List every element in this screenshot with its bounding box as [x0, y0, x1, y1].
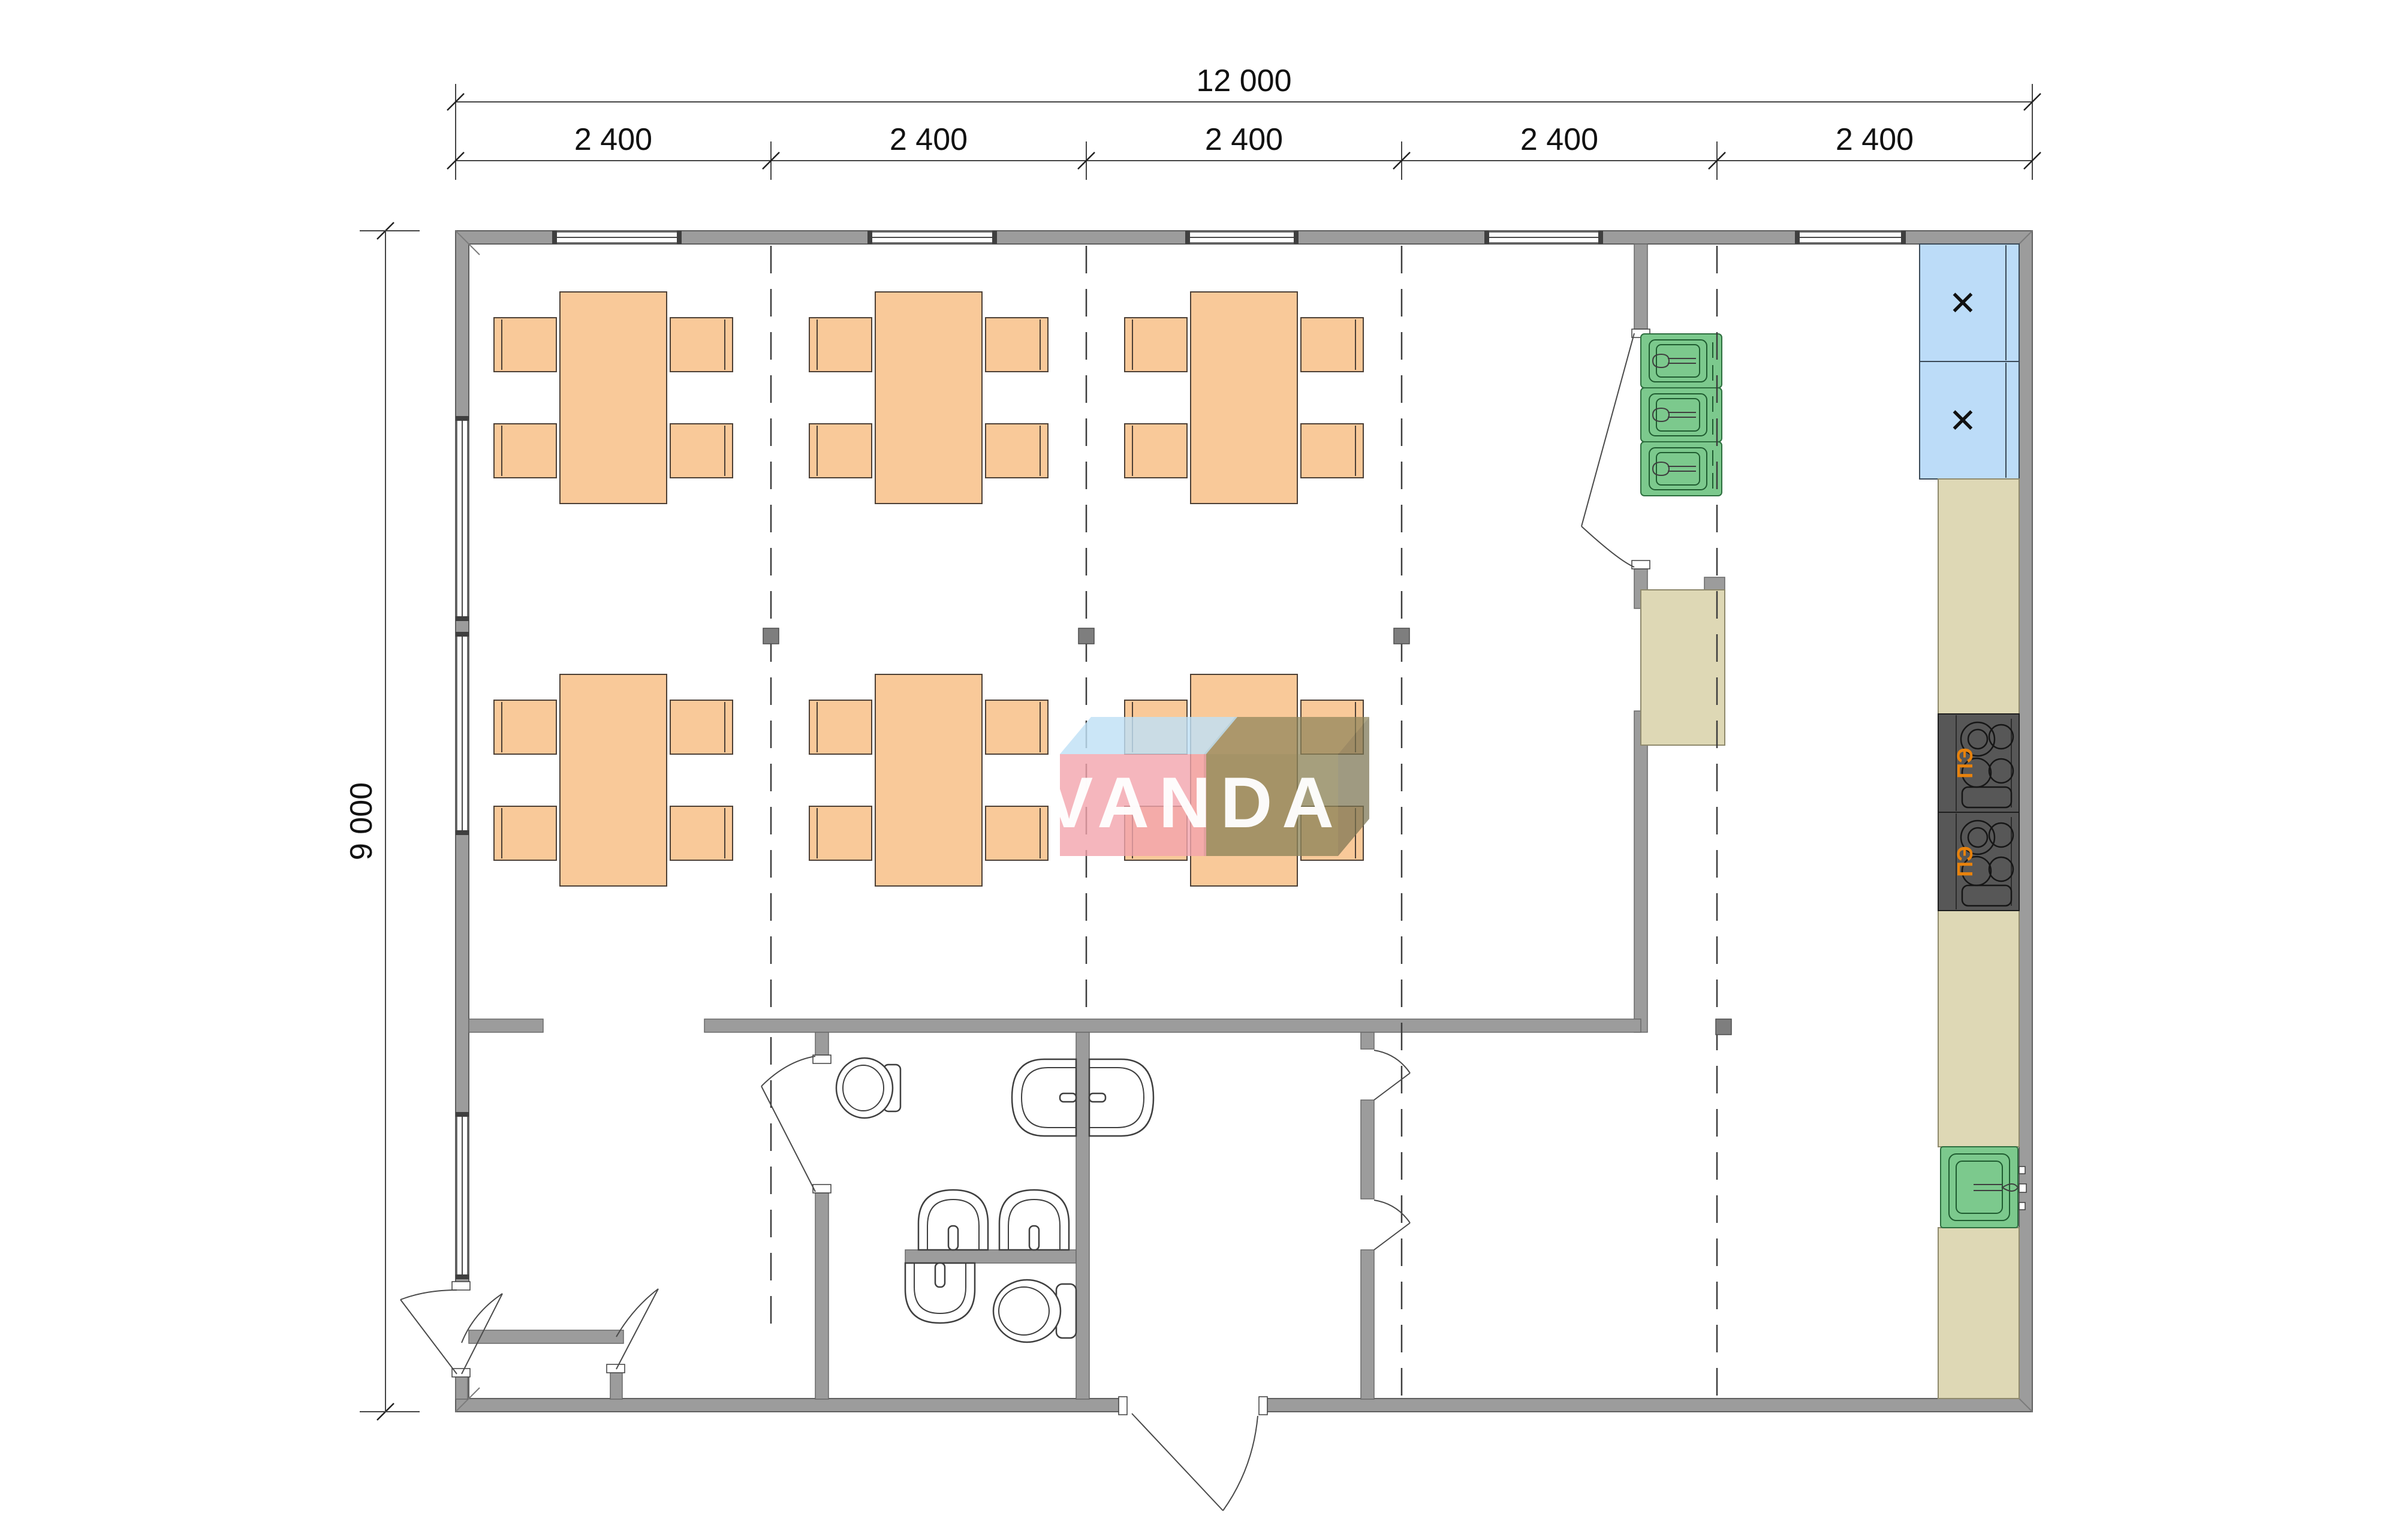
- wall: [1361, 1250, 1374, 1399]
- sanitary-block: [836, 1058, 1153, 1342]
- toilet: [836, 1058, 900, 1118]
- wall: [1361, 1100, 1374, 1199]
- electric-stove: ПЭ: [1938, 812, 2019, 911]
- wash-basin: [1089, 1059, 1153, 1136]
- single-sink: [1941, 1147, 2026, 1228]
- wash-basin: [1012, 1059, 1076, 1136]
- wash-basin: [918, 1190, 988, 1250]
- toilet: [993, 1280, 1076, 1342]
- wash-basin: [905, 1263, 975, 1323]
- dimension-label-total-width: 12 000: [1196, 64, 1291, 98]
- floor-plan-canvas: 12 000 2 400 2 400 2 400 2 400 2 400 9 0: [0, 0, 2398, 1540]
- dimension-label-height: 9 000: [344, 782, 379, 860]
- wall: [1634, 244, 1647, 329]
- dining-table-group: [809, 674, 1048, 886]
- kitchen: ✕ ✕ ПЭ ПЭ: [1641, 244, 2026, 1399]
- window: [456, 632, 469, 835]
- wall: [1076, 1032, 1089, 1399]
- counter: [1938, 1228, 2019, 1399]
- wall: [469, 1330, 623, 1343]
- counter: [1938, 479, 2019, 714]
- door-swing: [1374, 1050, 1410, 1100]
- wall: [704, 1019, 1641, 1032]
- sink-basin: [1641, 442, 1722, 496]
- watermark-text: VANDA: [1045, 763, 1343, 843]
- window: [456, 416, 469, 621]
- cabinet-x-mark: ✕: [1949, 402, 1977, 441]
- dimension-label-segment: 2 400: [574, 122, 652, 157]
- stove-label: ПЭ: [1953, 748, 1977, 779]
- door-swing: [400, 1290, 457, 1374]
- dining-table-group: [809, 292, 1048, 504]
- watermark: VANDA: [1045, 717, 1369, 856]
- door-swing: [1374, 1200, 1410, 1250]
- wall: [815, 1032, 829, 1055]
- window: [1185, 231, 1299, 244]
- column-marker: [1394, 628, 1409, 644]
- wall: [456, 1376, 468, 1399]
- column-marker: [763, 628, 779, 644]
- stove-label: ПЭ: [1953, 846, 1977, 877]
- column-marker: [1716, 1019, 1731, 1035]
- wall: [610, 1372, 622, 1399]
- window: [552, 231, 682, 244]
- window: [867, 231, 997, 244]
- electric-stove: ПЭ: [1938, 714, 2019, 812]
- dimension-label-segment: 2 400: [890, 122, 968, 157]
- exterior-door-openings: [452, 1282, 1267, 1415]
- dining-table-group: [494, 292, 733, 504]
- counter: [1938, 910, 2019, 1147]
- wall: [905, 1250, 1076, 1263]
- counter: [1641, 590, 1725, 745]
- sink-basin: [1641, 334, 1722, 388]
- sink-basin: [1641, 388, 1722, 442]
- door-swing: [1581, 333, 1634, 567]
- window: [1484, 231, 1603, 244]
- cabinet-x-mark: ✕: [1949, 284, 1977, 323]
- floor-plan: 12 000 2 400 2 400 2 400 2 400 2 400 9 0: [0, 0, 2398, 1540]
- door-swing: [761, 1056, 815, 1192]
- dimension-label-segment: 2 400: [1836, 122, 1914, 157]
- wall: [1704, 577, 1725, 590]
- dimension-label-segment: 2 400: [1520, 122, 1598, 157]
- wall: [815, 1193, 829, 1399]
- wall: [469, 1019, 543, 1032]
- cabinet-x-unit: ✕ ✕: [1920, 244, 2019, 479]
- wall: [1634, 711, 1647, 1032]
- kitchen-sink-triple: [1641, 334, 1722, 496]
- entrance-door-swing: [1132, 1414, 1258, 1511]
- dining-table-group: [1125, 292, 1363, 504]
- wall: [1361, 1032, 1374, 1049]
- window: [456, 1112, 469, 1279]
- wash-basin: [999, 1190, 1069, 1250]
- dining-table-group: [494, 674, 733, 886]
- dimension-label-segment: 2 400: [1205, 122, 1283, 157]
- column-marker: [1079, 628, 1094, 644]
- door-swing: [616, 1289, 658, 1369]
- window: [1795, 231, 1906, 244]
